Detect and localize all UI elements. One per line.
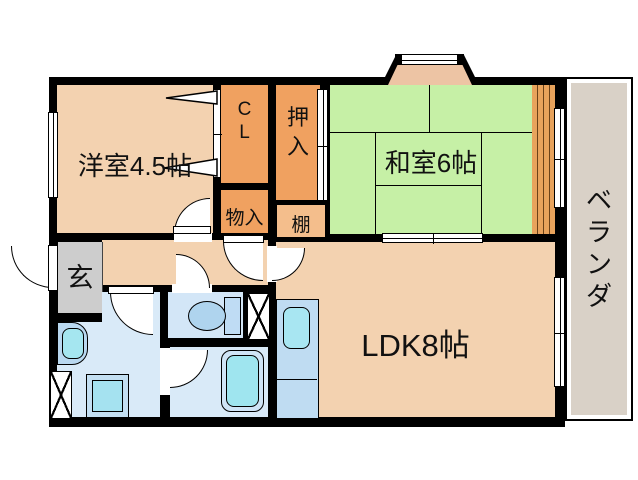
wood-slat-strip (532, 85, 555, 234)
kitchen-counter-divider (276, 379, 317, 380)
bay-window-post (395, 54, 402, 65)
floorplan-canvas: ベ ラ ン ダ (0, 0, 638, 480)
tatami-line (375, 185, 481, 186)
entrance-label: 玄 (58, 256, 102, 295)
closet-cl-label: C L (221, 98, 268, 144)
tatami-line (330, 132, 532, 133)
oshiire-char: 押 (276, 103, 320, 132)
fusuma-washitsu-ldk (382, 233, 483, 243)
storage-label: 物入 (221, 203, 268, 230)
door-swing-entrance (11, 246, 53, 288)
pipe-space-box (247, 293, 270, 340)
tatami-line (429, 85, 430, 132)
door-gap (160, 348, 170, 395)
door-leaf (48, 245, 58, 291)
veranda-label: ベ ラ ン ダ (565, 184, 633, 312)
sink-basin-icon (62, 328, 84, 359)
ldk-label: LDK8帖 (276, 320, 555, 365)
pipe-space-box (50, 371, 72, 419)
cl-char: L (221, 121, 268, 144)
veranda-char: ベ (565, 184, 633, 216)
oshiire-char: 入 (276, 132, 320, 161)
window-ldk-veranda (554, 277, 565, 387)
bathtub-icon (226, 355, 259, 407)
door-gap (174, 233, 212, 242)
cl-char: C (221, 98, 268, 121)
toilet-bowl-icon (188, 301, 226, 331)
shelf-label: 棚 (277, 210, 325, 237)
veranda-char: ラ (565, 216, 633, 248)
washing-machine-icon (92, 380, 123, 412)
bay-window-glass (395, 54, 464, 65)
veranda-char: ダ (565, 280, 633, 312)
door-leaf (223, 235, 264, 243)
door-leaf (108, 286, 154, 294)
oshiire-label: 押 入 (276, 103, 320, 161)
toilet-tank-icon (224, 297, 241, 335)
door-leaf (173, 226, 211, 234)
bay-window-post (457, 54, 464, 65)
folding-door-triangle-icon (164, 89, 218, 107)
bay-window-sill (388, 62, 472, 85)
window-washitsu-veranda (554, 108, 565, 208)
veranda-char: ン (565, 248, 633, 280)
western-room-label: 洋室4.5帖 (57, 146, 213, 183)
japanese-room-label: 和室6帖 (330, 143, 532, 180)
